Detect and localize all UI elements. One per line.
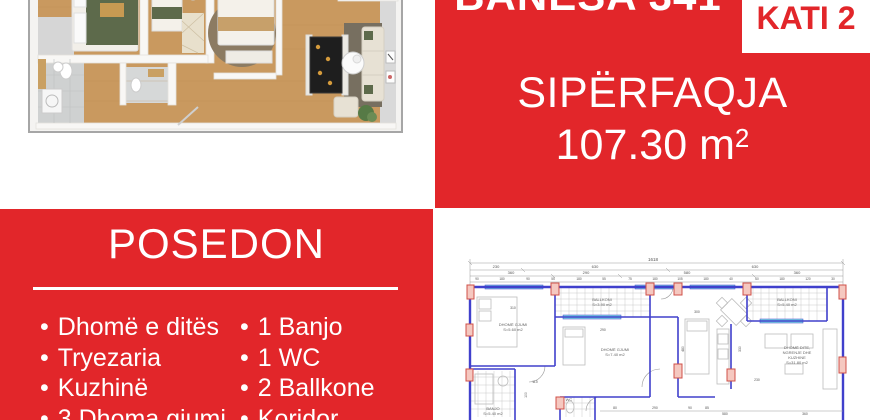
floor-badge-label: KATI 2 [757,2,856,34]
svg-text:310: 310 [510,306,516,310]
list-item: •2 Ballkone [240,373,425,404]
svg-text:S=5.40 m2: S=5.40 m2 [483,411,503,416]
svg-text:85: 85 [705,406,709,410]
svg-text:180: 180 [652,277,658,281]
svg-text:360: 360 [508,270,515,275]
svg-text:S=5.60 m2: S=5.60 m2 [503,327,523,332]
3d-floor-plan-render [28,0,403,133]
features-column-left: •Dhomë e ditës •Tryezaria •Kuzhinë •3 Dh… [40,312,240,420]
svg-text:630: 630 [752,264,759,269]
svg-text:580: 580 [684,270,691,275]
bullet-icon: • [240,374,249,402]
bullet-icon: • [40,313,49,341]
render-plan-panel [0,0,433,208]
svg-text:S=3.90 m2: S=3.90 m2 [592,302,612,307]
list-item: •Tryezaria [40,343,240,374]
svg-text:75: 75 [628,277,632,281]
svg-text:120: 120 [805,277,811,281]
svg-text:480: 480 [681,346,685,352]
svg-text:360: 360 [802,412,808,416]
svg-text:180: 180 [576,277,582,281]
bullet-icon: • [40,405,49,420]
bullet-icon: • [240,405,249,420]
svg-text:290: 290 [652,406,658,410]
svg-text:40: 40 [729,277,733,281]
features-title: POSEDON [0,223,433,265]
svg-text:S=5.40 m2: S=5.40 m2 [777,302,797,307]
room-label: WC [566,397,573,402]
area-value: 107.30 m2 [435,124,870,167]
features-column-right: •1 Banjo •1 WC •2 Ballkone •Koridor [240,312,425,420]
svg-text:90: 90 [688,406,692,410]
list-item: •Koridor [240,404,425,420]
svg-text:300: 300 [694,310,700,314]
svg-text:290: 290 [583,270,590,275]
features-list: •Dhomë e ditës •Tryezaria •Kuzhinë •3 Dh… [40,312,425,420]
svg-text:55: 55 [602,277,606,281]
svg-text:60: 60 [755,277,759,281]
svg-text:90: 90 [475,277,479,281]
svg-text:630: 630 [592,264,599,269]
svg-text:230: 230 [493,264,500,269]
svg-text:30: 30 [831,277,835,281]
list-item: •3 Dhoma gjumi [40,404,240,420]
bullet-icon: • [40,344,49,372]
svg-text:S=7.40 m2: S=7.40 m2 [605,352,625,357]
floor-badge: KATI 2 [742,0,870,53]
svg-text:330: 330 [738,346,742,352]
list-item: •1 Banjo [240,312,425,343]
svg-text:230: 230 [754,378,760,382]
apartment-title: BANESA 341 [435,0,741,17]
header-panel: BANESA 341 KATI 2 SIPËRFAQJA 107.30 m2 [435,0,870,208]
list-item: •Dhomë e ditës [40,312,240,343]
bullet-icon: • [240,344,249,372]
svg-text:105: 105 [677,277,683,281]
list-item: •1 WC [240,343,425,374]
svg-text:580: 580 [722,412,728,416]
svg-text:S=31.80 m2: S=31.80 m2 [786,360,808,365]
svg-text:80: 80 [613,406,617,410]
svg-text:360: 360 [794,270,801,275]
svg-text:180: 180 [499,277,505,281]
bullet-icon: • [40,374,49,402]
list-item: •Kuzhinë [40,373,240,404]
svg-text:180: 180 [779,277,785,281]
svg-text:55: 55 [551,277,555,281]
svg-text:110: 110 [532,380,538,384]
area-label: SIPËRFAQJA [435,72,870,115]
svg-text:90: 90 [526,277,530,281]
bullet-icon: • [240,313,249,341]
flyer-page: { "colors": { "accent_red": "#E2262A", "… [0,0,870,420]
divider [33,287,398,290]
square-meter-sup: 2 [735,123,749,153]
svg-text:100: 100 [524,392,528,398]
dim-total: 1618 [648,257,659,262]
technical-plan-panel: 1618 230 630 630 360 290 580 360 90 180 … [435,209,870,420]
technical-floor-plan: 1618 230 630 630 360 290 580 360 90 180 … [435,209,870,420]
svg-text:180: 180 [703,277,709,281]
features-panel: POSEDON •Dhomë e ditës •Tryezaria •Kuzhi… [0,209,433,420]
svg-text:290: 290 [600,328,606,332]
